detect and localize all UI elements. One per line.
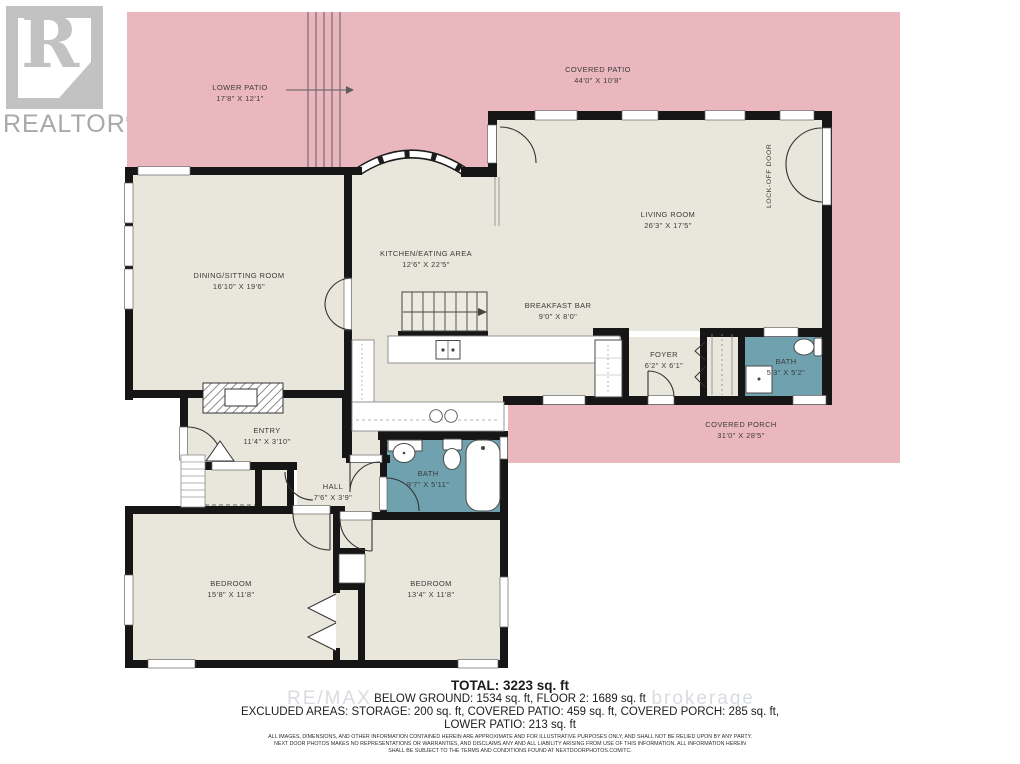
breakfast-bar-island: [388, 336, 620, 363]
room-name: COVERED PORCH: [705, 419, 776, 430]
room-dims: 31'0" X 28'5": [705, 430, 776, 441]
room-name: BATH: [767, 356, 805, 367]
cooktop-burner-icon: [445, 410, 458, 423]
room-label-covered-porch: COVERED PORCH31'0" X 28'5": [705, 419, 776, 441]
room-label-bath-small: BATH5'3" X 5'2": [767, 356, 805, 378]
staircase-icon: [402, 292, 487, 331]
room-name: ENTRY: [243, 425, 290, 436]
toilet-tank-icon: [814, 338, 822, 356]
room-name: DINING/SITTING ROOM: [194, 270, 285, 281]
excluded-areas-line2: LOWER PATIO: 213 sq. ft: [0, 719, 1020, 732]
area-summary: TOTAL: 3223 sq. ft BELOW GROUND: 1534 sq…: [0, 678, 1020, 732]
floor-plan-drawing: [0, 0, 1020, 764]
room-label-entry: ENTRY11'4" X 3'10": [243, 425, 290, 447]
disclaimer-text: ALL IMAGES, DIMENSIONS, AND OTHER INFORM…: [0, 734, 1020, 756]
pantry-cabinet: [595, 340, 622, 397]
fireplace-icon: [203, 383, 283, 413]
room-dims: 9'0" X 8'0": [525, 311, 592, 322]
room-label-bedroom-left: BEDROOM15'8" X 11'8": [207, 578, 254, 600]
room-name: LOWER PATIO: [212, 82, 267, 93]
room-label-living-room: LIVING ROOM26'3" X 17'5": [641, 209, 695, 231]
disclaimer-line: SHALL BE SUBJECT TO THE TERMS AND CONDIT…: [0, 748, 1020, 755]
lock-off-door-leaves: [823, 128, 832, 205]
area-breakdown-line: BELOW GROUND: 1534 sq. ft, FLOOR 2: 1689…: [0, 693, 1020, 706]
room-label-hall: HALL7'6" X 3'9": [314, 481, 352, 503]
room-dims: 44'0" X 10'8": [565, 75, 631, 86]
room-name: LIVING ROOM: [641, 209, 695, 220]
room-dims: 17'8" X 12'1": [212, 93, 267, 104]
lock-off-door-label: LOCK-OFF DOOR: [766, 126, 773, 208]
disclaimer-line: ALL IMAGES, DIMENSIONS, AND OTHER INFORM…: [0, 734, 1020, 741]
room-label-foyer: FOYER6'2" X 6'1": [645, 349, 683, 371]
excluded-areas-line: EXCLUDED AREAS: STORAGE: 200 sq. ft, COV…: [0, 706, 1020, 719]
room-label-kitchen: KITCHEN/EATING AREA12'6" X 22'5": [380, 248, 472, 270]
room-name: HALL: [314, 481, 352, 492]
room-label-covered-patio: COVERED PATIO44'0" X 10'8": [565, 64, 631, 86]
room-dims: 15'8" X 11'8": [207, 589, 254, 600]
room-name: FOYER: [645, 349, 683, 360]
room-dims: 13'4" X 11'8": [407, 589, 454, 600]
bathtub-icon: [466, 440, 500, 511]
room-label-lower-patio: LOWER PATIO17'8" X 12'1": [212, 82, 267, 104]
room-dims: 7'6" X 3'9": [314, 492, 352, 503]
room-name: BREAKFAST BAR: [525, 300, 592, 311]
room-name: BEDROOM: [207, 578, 254, 589]
room-name: BATH: [407, 468, 449, 479]
room-label-bedroom-right: BEDROOM13'4" X 11'8": [407, 578, 454, 600]
room-name: BEDROOM: [407, 578, 454, 589]
toilet-bowl-icon: [794, 339, 814, 355]
room-label-bath-main: BATH9'7" X 5'11": [407, 468, 449, 490]
toilet-bowl-icon: [444, 449, 461, 470]
room-name: COVERED PATIO: [565, 64, 631, 75]
disclaimer-line: NEXT DOOR PHOTOS MAKES NO REPRESENTATION…: [0, 741, 1020, 748]
room-dims: 12'6" X 22'5": [380, 259, 472, 270]
cooktop-burner-icon: [430, 410, 443, 423]
room-dims: 11'4" X 3'10": [243, 436, 290, 447]
room-dims: 26'3" X 17'5": [641, 220, 695, 231]
room-label-breakfast-bar: BREAKFAST BAR9'0" X 8'0": [525, 300, 592, 322]
room-dims: 16'10" X 19'6": [194, 281, 285, 292]
room-dims: 6'2" X 6'1": [645, 360, 683, 371]
bedroom-closet: [339, 554, 365, 583]
room-label-dining-sitting: DINING/SITTING ROOM16'10" X 19'6": [194, 270, 285, 292]
total-area: TOTAL: 3223 sq. ft: [0, 678, 1020, 693]
room-dims: 5'3" X 5'2": [767, 367, 805, 378]
room-name: KITCHEN/EATING AREA: [380, 248, 472, 259]
floor-plan-page: R REALTOR®: [0, 0, 1020, 764]
room-dims: 9'7" X 5'11": [407, 479, 449, 490]
